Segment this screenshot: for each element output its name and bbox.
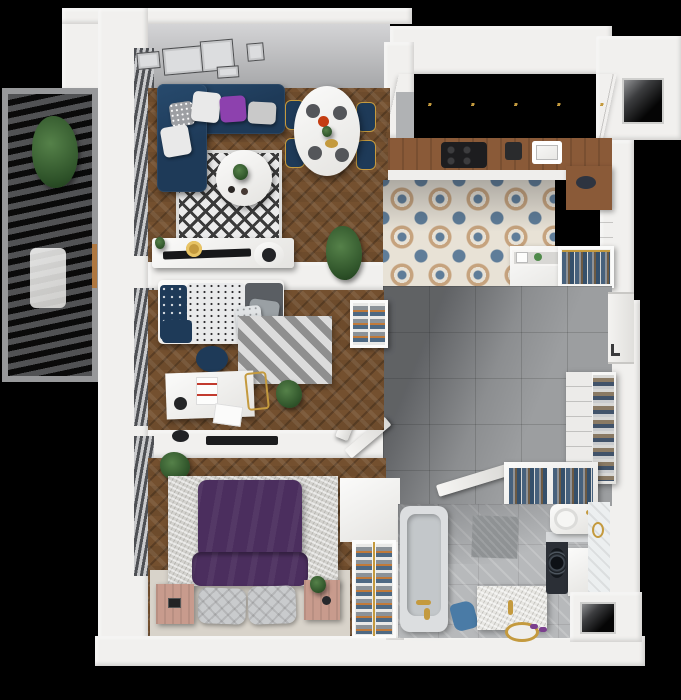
towel-ring-gold [592, 522, 604, 538]
sofa-pillow-lightgray [247, 101, 276, 124]
wall-kitchen-top [390, 26, 612, 74]
sofa-pillow-white-1 [191, 91, 222, 124]
bed2-duvet [198, 480, 302, 558]
console-plantlet [155, 237, 165, 249]
desk-lamp [174, 397, 187, 410]
wardrobe-clothes-left [356, 544, 372, 634]
closet-clothes-b [553, 468, 593, 504]
dining-plate-4 [335, 148, 349, 162]
balcony-plant [32, 116, 78, 188]
apartment-floorplan [0, 0, 681, 700]
coffee-machine [505, 142, 522, 160]
balcony-lounge-seat [30, 248, 66, 308]
kitchen-sink [532, 141, 562, 164]
bed2-pillow-left [197, 587, 246, 625]
wall-bottom [95, 636, 645, 666]
bed2-wardrobe [352, 540, 396, 638]
closet-rail [562, 250, 610, 252]
vanity-faucet [508, 600, 513, 615]
bed2-blanket-fold [192, 552, 308, 586]
drawer-item-box [516, 252, 528, 263]
balcony [2, 88, 98, 382]
bed1-navy-blanket [162, 320, 192, 343]
bed1-wall-niche [350, 300, 388, 348]
sofa-pillow-white-2 [160, 124, 193, 158]
closet-clothes-a [509, 468, 547, 504]
bathtub-shower-head [424, 608, 430, 620]
wardrobe-pole [373, 542, 375, 636]
wardrobe-hang-top [558, 246, 614, 288]
desk-chair-black [172, 430, 189, 442]
hanging-clothes [562, 252, 610, 284]
coffee-table-cup-1 [228, 186, 235, 193]
record-player-disc [262, 248, 276, 262]
kitchen-upper-cabinets [385, 74, 617, 138]
dining-chair-4 [356, 140, 376, 170]
sofa-pillow-purple [219, 95, 247, 123]
dining-greenery [322, 126, 332, 137]
dining-gold-tray [325, 139, 338, 148]
washer-drum [548, 548, 566, 578]
toilet-seat [554, 508, 578, 530]
cooktop [441, 142, 487, 168]
art-frame-1 [136, 51, 160, 70]
art-frame-4 [246, 42, 265, 61]
niche-clothes-left [353, 303, 368, 345]
desk-hat [576, 176, 596, 189]
drawer-item-green [534, 253, 542, 261]
art-frame-5 [217, 65, 240, 79]
slipper-1 [530, 624, 538, 629]
gold-frame-chair [244, 371, 270, 411]
coffee-table-plant [233, 164, 248, 180]
living-plant-large [326, 226, 362, 280]
desk-papers [213, 403, 244, 427]
slipper-2 [539, 627, 547, 632]
hall-bath-closet [504, 462, 598, 508]
dining-plate-2 [333, 106, 347, 120]
entry-door-handle-bar [611, 353, 620, 356]
wall-clock [186, 241, 202, 257]
ventilation-shaft-bottom [580, 602, 616, 634]
wall-mounted-tv [206, 436, 278, 445]
art-frame-2 [162, 45, 204, 75]
kitchen-side-cabinet [571, 208, 613, 250]
wardrobe-clothes-right [376, 544, 392, 634]
nightstand-left-tablet [168, 598, 181, 608]
nightstand-dark-item [322, 596, 331, 605]
coffee-table-cup-2 [241, 188, 248, 195]
bathtub-faucet [416, 600, 431, 605]
ventilation-shaft-top [622, 78, 664, 124]
bed2-pillow-right [247, 585, 296, 625]
desk-poster-red [196, 377, 218, 405]
bed2-closet-top [340, 478, 400, 542]
bath-floor-mat [471, 515, 518, 559]
nightstand-plant [310, 576, 326, 593]
bed1-plant [276, 380, 302, 408]
dining-plate-1 [306, 104, 320, 118]
bed1-pouf [196, 346, 228, 372]
dining-plate-3 [308, 146, 322, 160]
balcony-ladder [92, 244, 97, 288]
niche-clothes-right [370, 303, 385, 345]
